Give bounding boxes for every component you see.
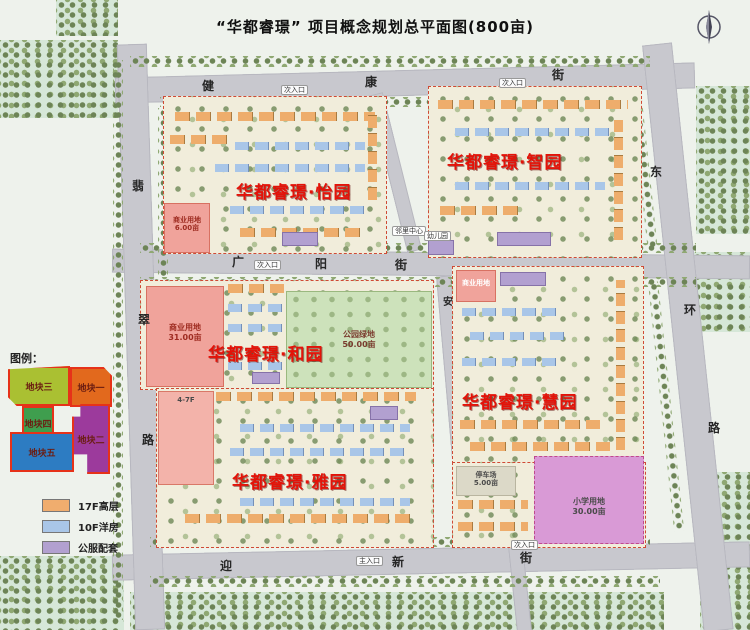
- building-public: [282, 232, 318, 246]
- street-char: 街: [395, 259, 407, 271]
- land-area: 50.00亩: [342, 340, 375, 349]
- building-col-highrise: [616, 280, 625, 450]
- green-block-top-left: [0, 40, 118, 118]
- entrance-label: 次入口: [254, 260, 281, 270]
- land-label: 4-7F: [177, 396, 194, 404]
- building-row-flats: [240, 498, 410, 506]
- zone-parking: 停车场 5.00亩: [456, 466, 516, 496]
- public-swatch: [42, 541, 70, 554]
- street-char: 翡: [132, 180, 144, 192]
- legend-title: 图例：: [10, 350, 43, 366]
- street-char: 迎: [220, 560, 232, 572]
- district-label-yayuan: 华都睿璟·雅园: [232, 468, 347, 493]
- legend-building-type: 公服配套: [42, 540, 118, 555]
- land-label: 商业用地: [169, 323, 201, 332]
- legend-plot-3: 地块三: [8, 366, 70, 406]
- land-label: 商业用地: [173, 216, 201, 224]
- building-row-highrise: [458, 500, 528, 509]
- building-public: [370, 406, 398, 420]
- street-char: 健: [202, 80, 214, 92]
- legend-building-type: 10F洋房: [42, 519, 119, 534]
- land-label: 小学用地: [573, 497, 605, 506]
- street-char: 路: [708, 422, 720, 434]
- building-row-flats: [470, 332, 570, 340]
- tree-row: [113, 60, 123, 620]
- building-row-highrise: [440, 206, 520, 215]
- building-row-flats: [230, 206, 370, 214]
- building-row-highrise: [216, 392, 416, 401]
- land-area: 31.00亩: [168, 333, 201, 342]
- legend-plot-label: 地块一: [77, 381, 104, 394]
- highrise-label: 17F高层: [78, 498, 119, 513]
- site-plan-canvas: “华都睿璟” 项目概念规划总平面图(800亩) 商业用地 6: [0, 0, 750, 630]
- building-row-flats: [462, 358, 558, 366]
- building-row-flats: [455, 182, 605, 190]
- building-col-highrise: [614, 120, 623, 240]
- street-char: 环: [684, 304, 696, 316]
- street-char: 街: [520, 552, 532, 564]
- district-label-zhiyuan: 华都睿璟·智园: [447, 148, 562, 173]
- building-row-flats: [228, 324, 282, 332]
- green-strip-bottom: [130, 592, 664, 630]
- street-char: 新: [392, 556, 404, 568]
- legend-building-type: 17F高层: [42, 498, 119, 513]
- public-label: 公服配套: [78, 540, 118, 555]
- building-kindergarten: [428, 240, 454, 255]
- street-char: 路: [142, 434, 154, 446]
- land-area: 5.00亩: [474, 479, 498, 487]
- district-label-heyuan: 华都睿璟·和园: [208, 340, 323, 365]
- district-label-huiyuan: 华都睿璟·慧园: [462, 388, 577, 413]
- building-row-highrise: [228, 284, 284, 293]
- land-area: 6.00亩: [175, 224, 199, 232]
- legend-plot-5: 地块五: [10, 432, 74, 472]
- legend-plot-label: 地块三: [25, 380, 52, 393]
- building-public: [252, 372, 280, 384]
- street-char: 广: [232, 256, 244, 268]
- building-row-highrise: [460, 420, 600, 429]
- entrance-label: 次入口: [281, 85, 308, 95]
- entrance-label: 次入口: [499, 78, 526, 88]
- facility-label-neighborhood-center: 邻里中心: [392, 226, 426, 236]
- green-block-bottom-left: [0, 556, 124, 630]
- legend-plot-1: 地块一: [70, 367, 112, 407]
- zone-commercial-huiyuan: 商业用地: [456, 270, 496, 302]
- street-char: 安: [443, 298, 453, 308]
- building-row-highrise: [458, 522, 528, 531]
- tree-row: [150, 576, 660, 587]
- land-area: 30.00亩: [572, 507, 605, 516]
- flats-swatch: [42, 520, 70, 533]
- entrance-label: 主入口: [356, 556, 383, 566]
- green-block-right-upper: [696, 86, 750, 234]
- green-block-top: [56, 0, 118, 36]
- highrise-swatch: [42, 499, 70, 512]
- legend-plot-2: 地块二: [72, 404, 110, 474]
- building-row-highrise: [438, 100, 628, 109]
- street-char: 阳: [315, 258, 327, 270]
- land-label: 公园绿地: [343, 330, 375, 339]
- zone-lowrise-yayuan: 4-7F: [158, 391, 214, 485]
- building-row-flats: [462, 308, 558, 316]
- building-row-flats: [215, 164, 365, 172]
- building-row-flats: [235, 142, 365, 150]
- street-char: 东: [650, 166, 662, 178]
- legend-plot-label: 地块五: [28, 446, 55, 459]
- street-char: 康: [365, 76, 377, 88]
- zone-commercial-yiyuan: 商业用地 6.00亩: [164, 203, 210, 253]
- legend-plot-label: 地块二: [77, 433, 104, 446]
- flats-label: 10F洋房: [78, 519, 119, 534]
- land-label: 商业用地: [462, 279, 490, 287]
- building-row-flats: [228, 304, 282, 312]
- building-col-highrise: [368, 115, 377, 200]
- building-row-flats: [230, 448, 410, 456]
- building-row-flats: [455, 128, 615, 136]
- district-label-yiyuan: 华都睿璟·怡园: [236, 178, 351, 203]
- street-char: 街: [552, 69, 564, 81]
- facility-label-kindergarten: 幼儿园: [424, 231, 451, 241]
- building-row-highrise: [170, 135, 230, 144]
- tree-row: [130, 56, 650, 67]
- zone-school: 小学用地 30.00亩: [534, 456, 644, 544]
- building-row-highrise: [470, 442, 610, 451]
- land-label: 停车场: [476, 471, 497, 479]
- entrance-label: 次入口: [511, 540, 538, 550]
- building-public: [497, 232, 551, 246]
- building-row-flats: [240, 424, 410, 432]
- street-char: 翠: [138, 314, 150, 326]
- legend-plot-label: 地块四: [24, 417, 51, 430]
- north-compass-icon: [694, 4, 724, 50]
- zone-commercial-heyuan: 商业用地 31.00亩: [146, 286, 224, 387]
- building-public: [500, 272, 546, 286]
- building-row-highrise: [175, 112, 375, 121]
- building-row-highrise: [185, 514, 415, 523]
